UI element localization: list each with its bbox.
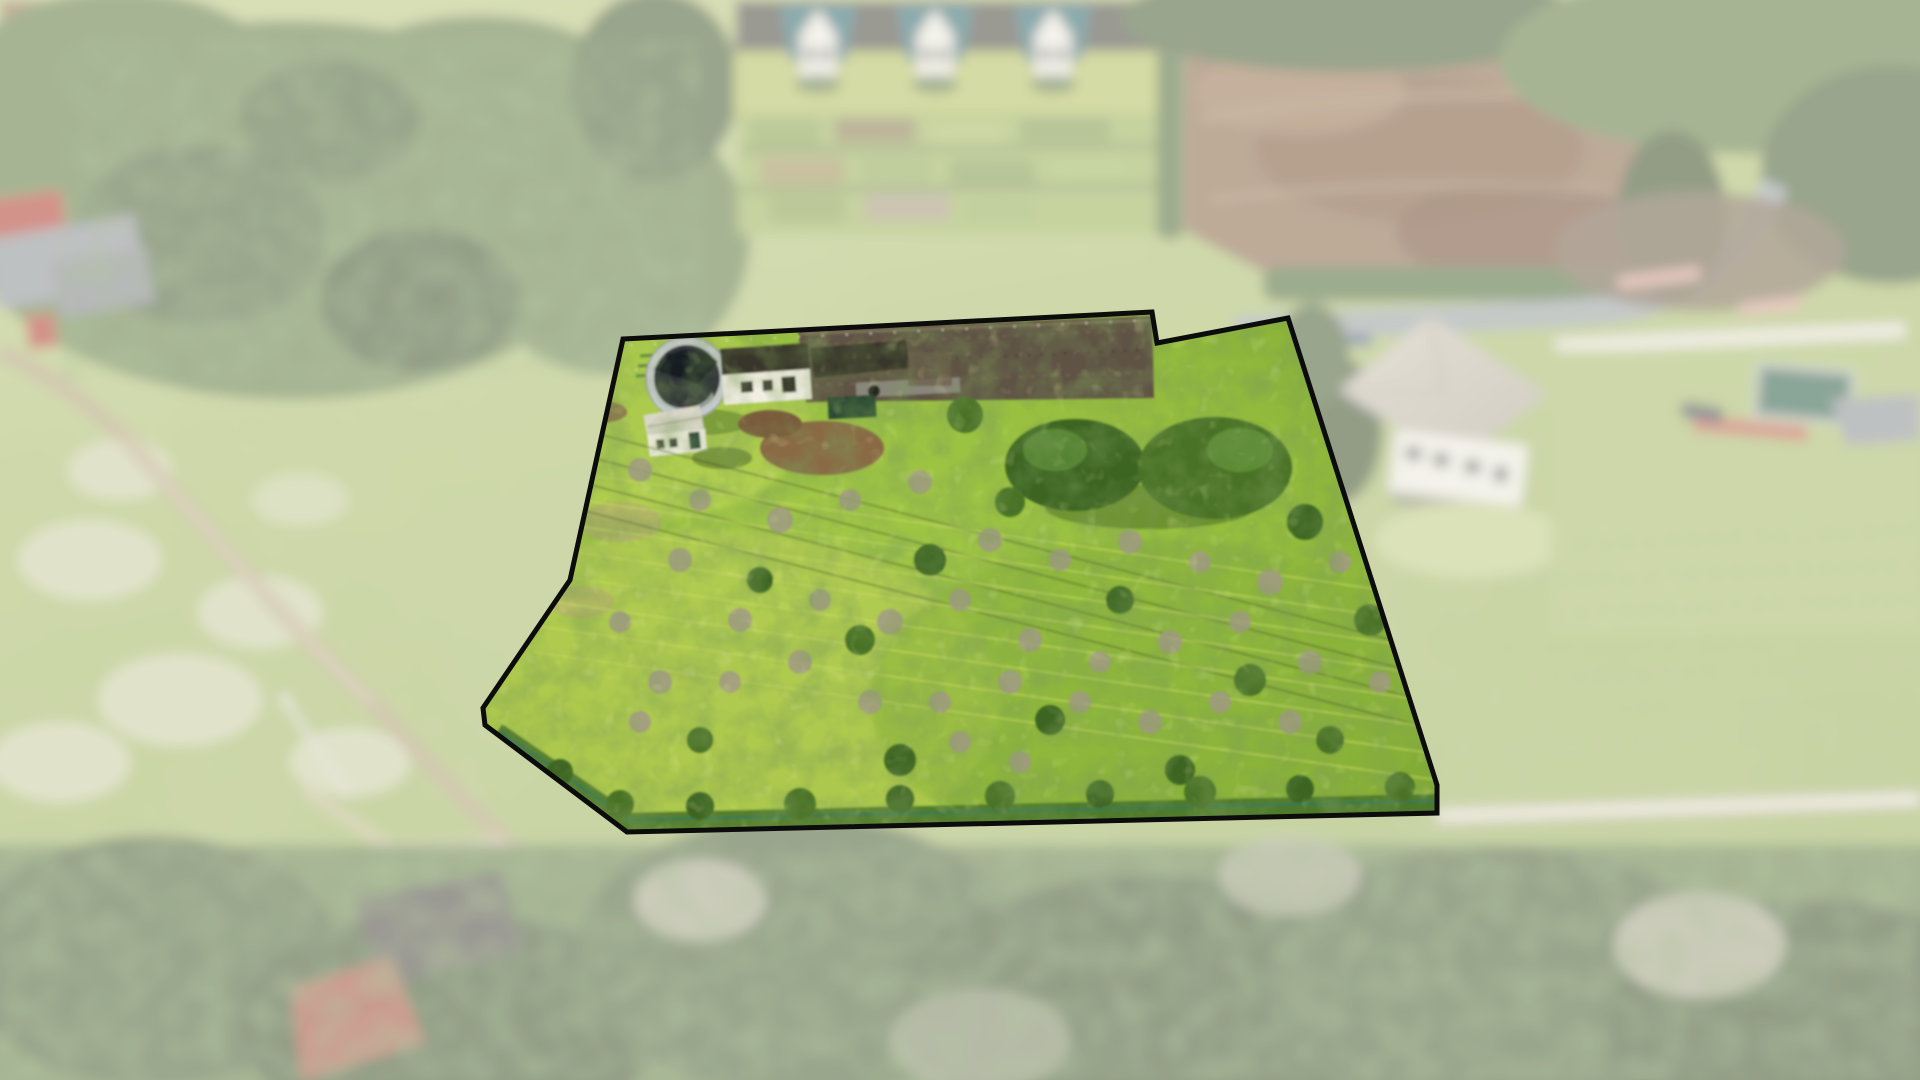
aerial-photo-stage [0, 0, 1920, 1080]
aerial-photo [0, 0, 1920, 1080]
